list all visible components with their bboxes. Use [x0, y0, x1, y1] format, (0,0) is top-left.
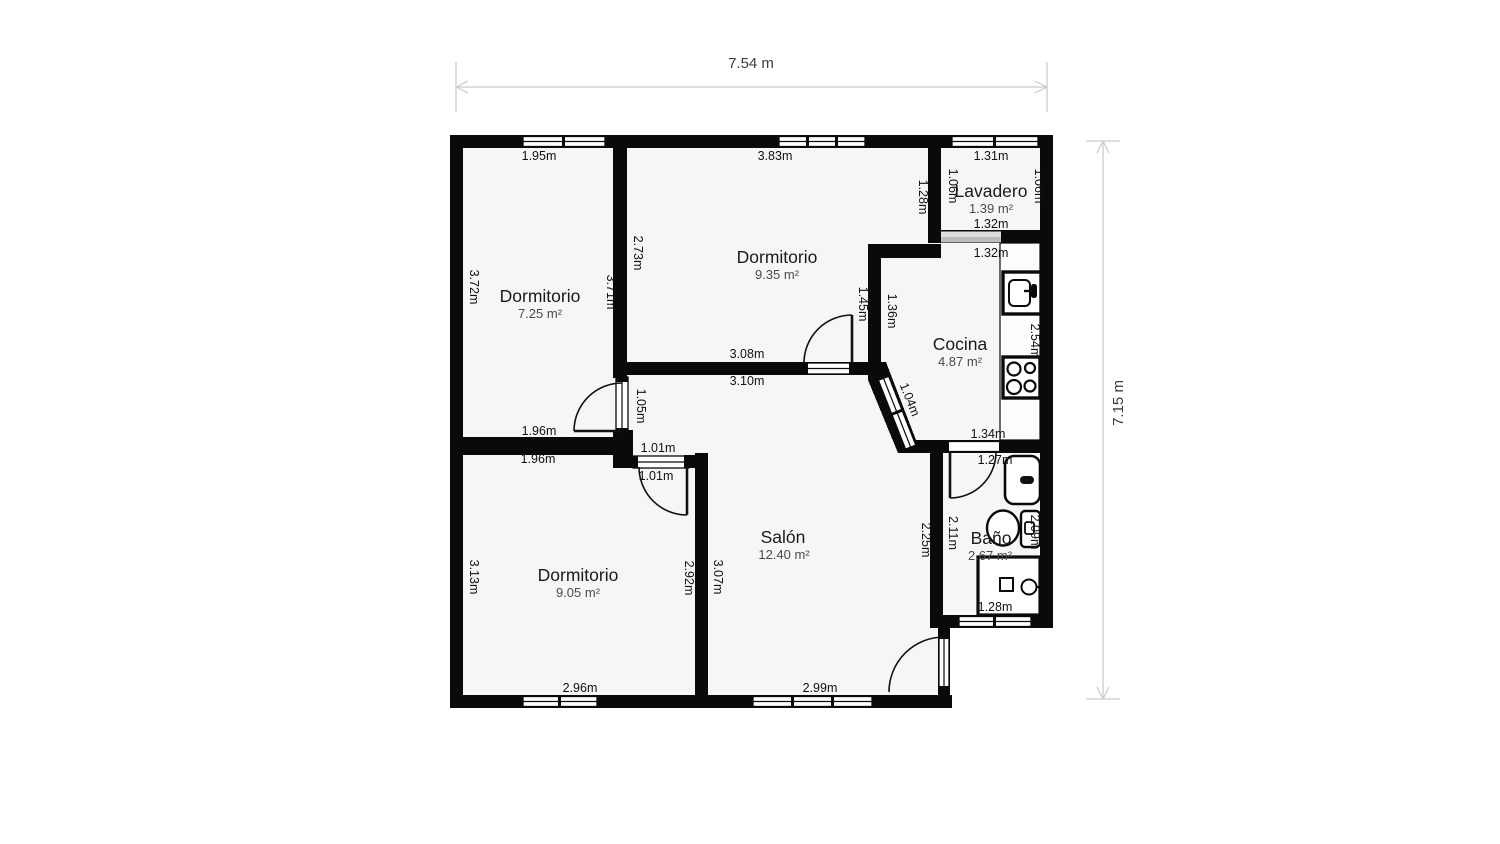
- floorplan-page: 7.54 m 7.15 m Dormitorio 7.25 m² Dormito…: [0, 0, 1500, 844]
- room-name-bano: Baño: [971, 528, 1012, 548]
- room-area-bano: 2.67 m²: [968, 548, 1013, 563]
- overall-height-label: 7.15 m: [1110, 380, 1127, 426]
- wall-outer-right: [1040, 135, 1053, 628]
- room-name-dormitorio-2: Dormitorio: [737, 247, 818, 267]
- dimension-height: 7.15 m: [1086, 141, 1127, 699]
- window-lavadero-top-icon: [952, 137, 1038, 147]
- dim-bano-bottom: 1.28m: [978, 600, 1013, 614]
- dim-dorm1-top: 1.95m: [522, 149, 557, 163]
- room-name-lavadero: Lavadero: [955, 181, 1028, 201]
- dim-dorm2-wall-right-upper: 1.28m: [916, 180, 930, 215]
- dim-lavadero-right: 1.06m: [1032, 169, 1046, 204]
- wall-outer-left: [450, 135, 463, 708]
- dim-dorm2-wall-right: 1.36m: [885, 294, 899, 329]
- dim-dorm3-top: 1.96m: [521, 452, 556, 466]
- dim-salon-right: 2.25m: [919, 523, 933, 558]
- dim-salon-bottom: 2.99m: [803, 681, 838, 695]
- dimension-width: 7.54 m: [456, 55, 1047, 112]
- dim-dorm3-left: 3.13m: [467, 560, 481, 595]
- dim-lavadero-top: 1.31m: [974, 149, 1009, 163]
- dim-dorm2-left: 2.73m: [631, 236, 645, 271]
- dim-cocina-right: 2.54m: [1028, 324, 1042, 359]
- stove-icon: [1003, 357, 1040, 398]
- room-area-dormitorio-2: 9.35 m²: [755, 267, 800, 282]
- dim-dorm3-right: 2.92m: [682, 561, 696, 596]
- dim-dorm1-right: 3.71m: [604, 275, 618, 310]
- window-dorm1-top-icon: [523, 137, 605, 147]
- sink-icon: [1003, 272, 1041, 314]
- dim-dorm1-left: 3.72m: [467, 270, 481, 305]
- dim-dorm2-door: 1.45m: [856, 287, 870, 322]
- dim-bano-right: 2.09m: [1028, 515, 1042, 550]
- dim-lavadero-bottom: 1.32m: [974, 217, 1009, 231]
- dim-dorm2-bottom: 3.08m: [730, 347, 765, 361]
- overall-width-label: 7.54 m: [728, 55, 774, 72]
- dim-dorm3-bottom: 2.96m: [563, 681, 598, 695]
- dim-dorm1-bottom: 1.96m: [522, 424, 557, 438]
- dim-salon-left: 3.07m: [711, 560, 725, 595]
- room-area-cocina: 4.87 m²: [938, 354, 983, 369]
- dim-dorm3-door-top: 1.01m: [641, 441, 676, 455]
- floorplan-canvas: 7.54 m 7.15 m Dormitorio 7.25 m² Dormito…: [0, 0, 1500, 844]
- room-name-salon: Salón: [761, 527, 806, 547]
- dim-bano-left: 2.11m: [946, 516, 960, 550]
- window-dorm2-top-icon: [779, 137, 865, 147]
- dim-dorm2-top: 3.83m: [758, 149, 793, 163]
- room-name-dormitorio-1: Dormitorio: [500, 286, 581, 306]
- wall-cocina-top-connector: [868, 244, 941, 258]
- room-area-salon: 12.40 m²: [758, 547, 810, 562]
- dim-bano-top: 1.27m: [978, 453, 1013, 467]
- window-bano-bottom-icon: [959, 617, 1031, 627]
- room-area-lavadero: 1.39 m²: [969, 201, 1014, 216]
- room-name-dormitorio-3: Dormitorio: [538, 565, 619, 585]
- room-name-cocina: Cocina: [933, 334, 988, 354]
- window-salon-bottom-icon: [753, 697, 872, 707]
- dim-lavadero-left: 1.06m: [946, 169, 960, 204]
- room-area-dormitorio-1: 7.25 m²: [518, 306, 563, 321]
- dim-dorm1-door: 1.05m: [634, 389, 648, 424]
- dim-cocina-top: 1.32m: [974, 246, 1009, 260]
- window-dorm3-bottom-icon: [523, 697, 597, 707]
- dim-cocina-bottom: 1.34m: [971, 427, 1006, 441]
- dim-salon-top: 3.10m: [730, 374, 765, 388]
- pass-lavadero-cocina-icon: [941, 232, 1001, 243]
- room-area-dormitorio-3: 9.05 m²: [556, 585, 601, 600]
- wall-divider-top-dorms: [613, 148, 627, 378]
- dim-dorm3-door-bottom: 1.01m: [639, 469, 674, 483]
